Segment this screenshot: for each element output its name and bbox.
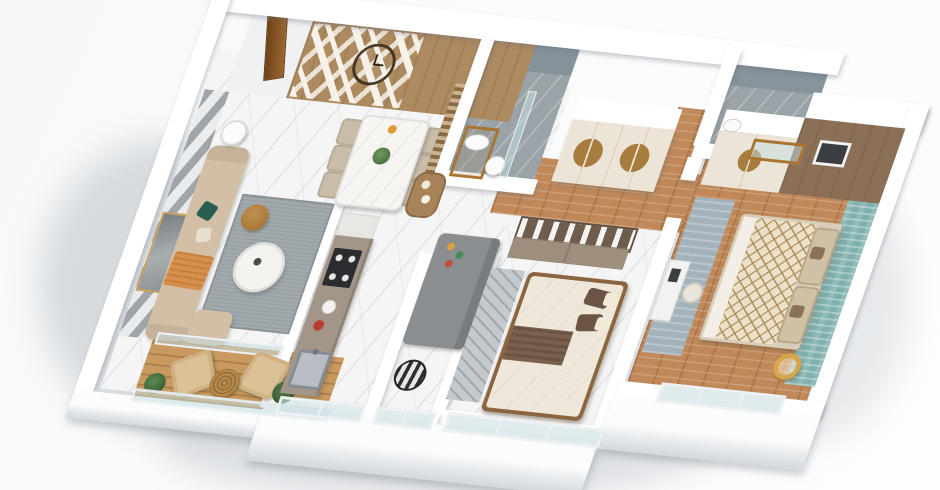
bedroom2-runner bbox=[502, 325, 573, 365]
hall-wardrobe-front bbox=[551, 119, 675, 192]
faucet bbox=[312, 349, 320, 355]
desk-items bbox=[667, 268, 681, 282]
bar-bottle-1 bbox=[420, 180, 431, 189]
apartment-plan bbox=[89, 2, 940, 474]
coffee-table-decor bbox=[252, 258, 262, 266]
floor-plan-scene bbox=[0, 0, 940, 490]
clock-minute-hand bbox=[373, 63, 384, 66]
bar-bottle-2 bbox=[420, 195, 431, 204]
